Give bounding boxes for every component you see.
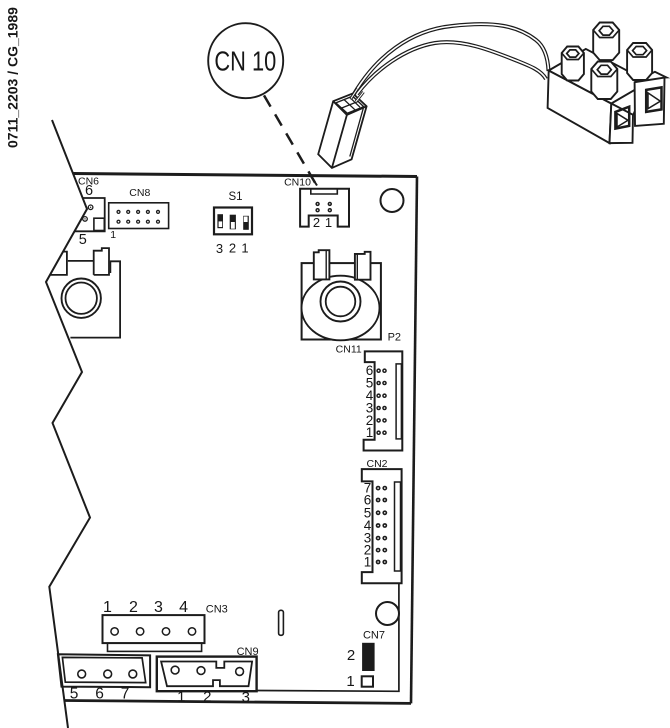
svg-text:6: 6 <box>85 183 93 199</box>
svg-text:1: 1 <box>177 689 185 706</box>
svg-text:6: 6 <box>95 686 104 703</box>
svg-text:S1: S1 <box>228 191 242 203</box>
svg-text:7: 7 <box>121 686 130 703</box>
svg-text:2: 2 <box>129 599 138 616</box>
svg-text:3: 3 <box>242 689 250 706</box>
svg-text:CN10: CN10 <box>284 176 311 188</box>
svg-text:2: 2 <box>313 215 320 230</box>
svg-text:1: 1 <box>364 555 372 570</box>
svg-text:1: 1 <box>110 229 116 241</box>
svg-text:1: 1 <box>325 215 332 230</box>
svg-text:0711_2203 / CG_1989: 0711_2203 / CG_1989 <box>5 7 21 148</box>
svg-text:5: 5 <box>70 686 79 703</box>
svg-text:2: 2 <box>347 647 355 664</box>
svg-text:CN8: CN8 <box>129 187 150 199</box>
svg-text:CN7: CN7 <box>363 630 385 642</box>
svg-text:1: 1 <box>103 599 112 616</box>
svg-text:1: 1 <box>241 241 248 256</box>
svg-text:5: 5 <box>79 232 87 248</box>
svg-text:CN 10: CN 10 <box>214 46 276 77</box>
svg-text:1: 1 <box>366 425 374 440</box>
svg-text:2: 2 <box>203 689 211 706</box>
svg-text:CN3: CN3 <box>206 604 228 616</box>
svg-text:1: 1 <box>346 673 354 690</box>
svg-text:3: 3 <box>216 241 223 256</box>
svg-text:P2: P2 <box>388 332 401 344</box>
svg-text:4: 4 <box>179 599 188 616</box>
svg-text:CN11: CN11 <box>336 344 362 356</box>
svg-text:3: 3 <box>154 599 163 616</box>
svg-text:2: 2 <box>229 241 236 256</box>
